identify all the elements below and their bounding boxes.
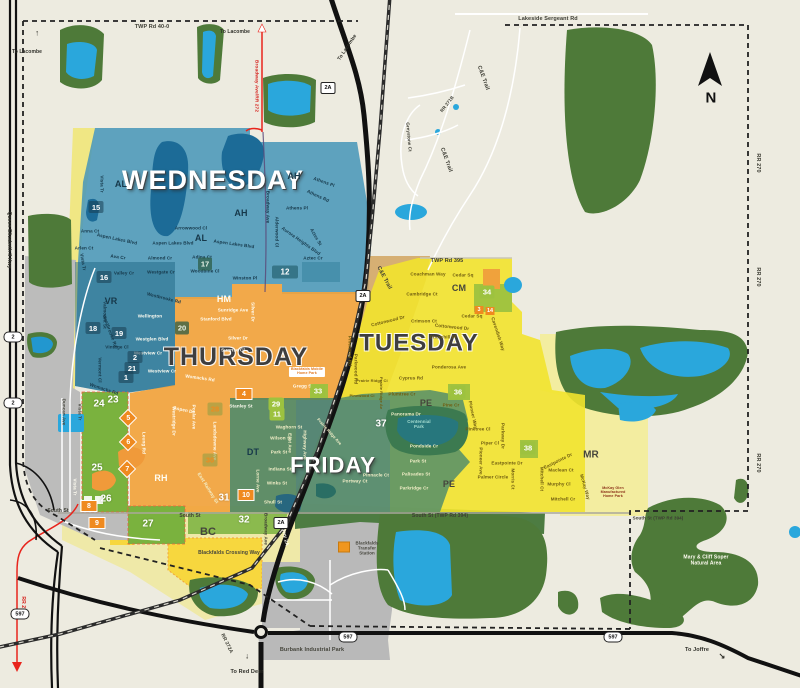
map-label: Athens Pl bbox=[313, 176, 336, 188]
highway-shield-2A: 2A bbox=[356, 290, 371, 302]
map-label: McKay Way bbox=[579, 474, 591, 501]
map-label: Duncan Ave bbox=[61, 399, 66, 426]
highway-shield-597: 597 bbox=[604, 632, 623, 643]
labels-layer: N WEDNESDAYTHURSDAYTUESDAYFRIDAYALALAHAH… bbox=[0, 0, 800, 688]
map-label: Palmer Circle bbox=[478, 474, 509, 479]
poi-mckay-glen: McKay Glen Manufactured Home Park bbox=[601, 486, 626, 498]
map-label: To Lacombe bbox=[12, 50, 42, 56]
map-label: To Lacombe bbox=[337, 34, 358, 62]
map-label: Morris Ct bbox=[510, 468, 515, 489]
map-label: Sunrise Cl bbox=[221, 347, 245, 352]
zone-label-tuesday: TUESDAY bbox=[359, 331, 478, 358]
zone-badge-23: 23 bbox=[107, 395, 118, 406]
zone-badge-25: 25 bbox=[91, 463, 102, 474]
map-label: Plumtree Cr bbox=[388, 391, 415, 396]
map-label: Mitchell Ct bbox=[539, 467, 544, 491]
map-label: Vista Tr bbox=[99, 175, 104, 192]
map-label: C&E Trail bbox=[439, 147, 453, 173]
zone-badge-18: 18 bbox=[86, 322, 101, 334]
map-label: Arlen Ct bbox=[75, 245, 94, 250]
area-label-bc: BC bbox=[200, 526, 216, 538]
highway-shield-2A: 2A bbox=[274, 517, 289, 529]
area-label-hm: HM bbox=[217, 294, 231, 304]
zone-badge-36: 36 bbox=[451, 386, 466, 399]
zone-badge-9: 9 bbox=[89, 517, 106, 529]
map-label: Mitchell Cr bbox=[551, 496, 576, 501]
area-label-al: AL bbox=[115, 179, 127, 189]
zone-badge-17: 17 bbox=[198, 258, 212, 271]
map-label: Vista Tr bbox=[77, 404, 82, 421]
zone-badge-37: 37 bbox=[375, 419, 386, 430]
transfer-station-marker bbox=[338, 542, 350, 553]
map-label: South St bbox=[179, 514, 200, 520]
zone-badge-7: 7 bbox=[118, 460, 136, 478]
poi-transfer-station: Blackfalds Transfer Station bbox=[356, 542, 379, 557]
map-label: Broadway Ave bbox=[263, 513, 268, 545]
map-label: Westgate Cr bbox=[147, 269, 175, 274]
map-label: Stanley St bbox=[229, 403, 252, 408]
north-label: N bbox=[706, 91, 717, 108]
zone-badge-20: 20 bbox=[175, 322, 189, 335]
map-label: South St bbox=[47, 509, 68, 515]
map-label: Aspen Lakes Blvd bbox=[152, 240, 193, 245]
zone-badge-26: 26 bbox=[100, 494, 111, 505]
map-label: Lorne Ave bbox=[255, 469, 260, 492]
map-label: Cottonwood Dr bbox=[371, 314, 406, 327]
area-label-pe: PE bbox=[420, 398, 432, 408]
map-label: To Lacombe bbox=[220, 30, 250, 36]
map-label: Pioneer Way bbox=[468, 401, 479, 430]
highway-shield-2: 2 bbox=[4, 398, 23, 409]
map-label: Cambridge Ct bbox=[406, 291, 437, 296]
zone-badge-3: 3 bbox=[475, 306, 484, 314]
map-label: Vista Tr bbox=[79, 253, 87, 271]
map-label: Sunridge Ave bbox=[218, 307, 248, 312]
map-label: Pinnacle Ct bbox=[363, 472, 389, 477]
map-label: Indiana St bbox=[269, 466, 292, 471]
zone-badge-30: 30 bbox=[203, 454, 218, 467]
zone-label-wednesday: WEDNESDAY bbox=[122, 165, 304, 195]
poi-mobile-home-park: Blackfalds Mobile Home Park bbox=[289, 367, 325, 377]
map-label: Lakeside Sergeant Rd bbox=[518, 16, 577, 22]
map-label: Ponderosa Ave bbox=[432, 364, 466, 369]
map-label: Panorama Dr bbox=[391, 411, 421, 416]
zone-badge-31: 31 bbox=[218, 493, 229, 504]
zone-badge-24: 24 bbox=[93, 399, 104, 410]
map-label: Almond Cr bbox=[148, 255, 172, 260]
poi-soper-natural-area: Mary & Cliff Soper Natural Area bbox=[683, 555, 728, 566]
zone-badge-6: 6 bbox=[119, 433, 137, 451]
map-label: Westglen Blvd bbox=[136, 336, 169, 341]
map-label: Piper Cl bbox=[481, 440, 499, 445]
map-label: Aspen Lakes Blvd bbox=[213, 239, 254, 250]
zone-badge-34: 34 bbox=[480, 286, 495, 299]
zone-badge-33: 33 bbox=[311, 385, 326, 398]
map-label: Pinewood Cl bbox=[349, 394, 374, 398]
map-label: Maclean Ct bbox=[548, 467, 573, 472]
map-label: Ava Cr bbox=[110, 253, 126, 260]
map-label: Aztec Cr bbox=[303, 255, 322, 260]
map-label: Portway Ct bbox=[343, 478, 368, 483]
zone-badge-32: 32 bbox=[238, 515, 249, 526]
highway-shield-597: 597 bbox=[11, 609, 30, 620]
arrow-up-icon: ↑ bbox=[35, 30, 39, 39]
zone-badge-28: 28 bbox=[208, 403, 223, 416]
zone-badge-4: 4 bbox=[236, 388, 253, 400]
poi-centennial-park: Centennial Park bbox=[407, 420, 430, 430]
map-label: Parkway Dr bbox=[500, 423, 505, 449]
map-label: Highway Ave bbox=[302, 430, 307, 459]
map-label: C&E Trail bbox=[476, 65, 490, 91]
map-label: Leung Rd bbox=[141, 432, 146, 454]
map-label: Westbrooke Rd bbox=[146, 291, 181, 304]
area-label-dt: DT bbox=[247, 447, 259, 457]
area-label-cm: CM bbox=[452, 283, 466, 293]
map-label: To Red Deer bbox=[230, 669, 263, 675]
map-label: Parkwood Rd bbox=[353, 354, 358, 384]
zone-badge-1: 1 bbox=[119, 371, 134, 383]
map-label: Shull St bbox=[264, 499, 282, 504]
map-label: Waghorn St bbox=[276, 424, 303, 429]
map-label: To Joffre bbox=[685, 647, 709, 653]
map-label: Cedar Sq bbox=[462, 313, 483, 318]
map-label: East Ave bbox=[287, 433, 292, 453]
map-label: Silver Dr bbox=[250, 302, 255, 322]
area-label-rh: RH bbox=[154, 473, 167, 483]
arrow-down-icon: ↓ bbox=[245, 653, 249, 662]
map-label: Broadway Ave bbox=[265, 191, 270, 224]
map-label: Park St bbox=[271, 449, 288, 454]
map-label: Cyprus Rd bbox=[399, 375, 423, 380]
area-label-mr: MR bbox=[583, 449, 599, 460]
map-label: TWP Rd 40-0 bbox=[135, 24, 170, 30]
map-label: Hwy 2A bbox=[279, 527, 288, 546]
map-label: Pioneer Ave bbox=[478, 447, 483, 474]
map-label: Valley Cr bbox=[114, 270, 134, 275]
map-label: Prairie Ridge Ave bbox=[316, 418, 342, 447]
zone-badge-27: 27 bbox=[142, 519, 153, 530]
map-label: RR 270 bbox=[755, 453, 761, 472]
map-label: Crimson Ct bbox=[411, 318, 437, 323]
map-label: RR 270 bbox=[755, 267, 761, 286]
map-label: Queen Elizabeth II Hwy bbox=[5, 212, 11, 269]
highway-shield-2A: 2A bbox=[321, 82, 336, 94]
highway-shield-597: 597 bbox=[339, 632, 358, 643]
zone-badge-15: 15 bbox=[89, 201, 104, 213]
map-label: Westview Cr bbox=[148, 368, 176, 373]
map-label: Cedar Sq bbox=[453, 272, 474, 277]
map-label: TWP Rd 395 bbox=[431, 258, 464, 264]
zone-badge-label: 6 bbox=[126, 439, 130, 446]
map-label: Pinewood Rd bbox=[347, 336, 352, 366]
map-label: Silver Dr bbox=[228, 335, 248, 340]
map-label: Murphy Cl bbox=[547, 481, 570, 486]
map-label: Palisades St bbox=[402, 471, 430, 476]
map-label: East Railway St bbox=[196, 472, 219, 505]
collection-schedule-map: N WEDNESDAYTHURSDAYTUESDAYFRIDAYALALAHAH… bbox=[0, 0, 800, 688]
map-label: Arrowwood Cl bbox=[175, 225, 207, 230]
poi-burbank-industrial-park: Burbank Industrial Park bbox=[280, 647, 344, 653]
map-label: South St (TWP Rd 394) bbox=[633, 515, 684, 520]
map-label: Stanford Blvd bbox=[200, 316, 231, 321]
map-label: Winks St bbox=[267, 480, 287, 485]
map-label: Vista Tr bbox=[72, 479, 77, 496]
area-label-al: AL bbox=[195, 233, 207, 243]
map-label: RR 270 bbox=[755, 153, 761, 172]
map-label: Pinetree Cl bbox=[465, 426, 490, 431]
map-label: Greystone Ct bbox=[405, 122, 413, 152]
map-label: Eastpointe Dr bbox=[491, 460, 522, 465]
map-label: RR 272A bbox=[219, 633, 233, 655]
map-label: Westridge Dr bbox=[171, 406, 176, 436]
area-label-ah: AH bbox=[234, 208, 247, 218]
map-label: C&E Trail bbox=[375, 265, 392, 290]
arrow-se-icon: ↘ bbox=[719, 653, 726, 662]
highway-shield-2: 2 bbox=[4, 332, 23, 343]
zone-badge-12: 12 bbox=[272, 266, 298, 279]
zone-badge-16: 16 bbox=[97, 271, 112, 283]
map-label: Aztec St bbox=[309, 228, 323, 247]
map-label: South St (TWP Rd 394) bbox=[412, 514, 468, 520]
map-label: Parkridge Cr bbox=[400, 485, 429, 490]
map-label: Vintage Cl bbox=[105, 344, 128, 349]
zone-badge-10: 10 bbox=[238, 489, 255, 501]
map-label: Wellington bbox=[138, 313, 162, 318]
map-label: Pondside Cr bbox=[410, 443, 438, 448]
zone-badge-label: 5 bbox=[126, 415, 130, 422]
map-label: Cavendish Way bbox=[490, 317, 506, 352]
zone-badge-14: 14 bbox=[486, 307, 495, 315]
map-label: Blackfalds Crossing Way bbox=[198, 551, 260, 557]
zone-badge-19: 19 bbox=[112, 327, 127, 339]
map-label: Womacks Rd bbox=[185, 373, 215, 382]
map-label: Winston Pl bbox=[233, 275, 258, 280]
zone-badge-11: 11 bbox=[270, 408, 285, 421]
zone-badge-38: 38 bbox=[521, 442, 536, 455]
map-label: Poplar Ave bbox=[191, 405, 196, 430]
area-label-pe: PE bbox=[443, 479, 455, 489]
zone-badge-8: 8 bbox=[81, 500, 98, 512]
area-label-ah: AH bbox=[287, 171, 300, 181]
map-label: Athens Rd bbox=[306, 189, 330, 204]
map-label: Vermont Cl bbox=[97, 357, 102, 382]
zone-badge-5: 5 bbox=[119, 409, 137, 427]
map-label: Coachman Way bbox=[410, 271, 445, 276]
map-label: Aspen Lakes Blvd bbox=[96, 232, 137, 246]
map-label: Athens Pl bbox=[286, 205, 308, 210]
map-label: Broadway Ave/RR 272 bbox=[253, 60, 258, 112]
zone-badge-label: 7 bbox=[125, 466, 129, 473]
map-label: RR 271B bbox=[439, 95, 455, 113]
map-label: Churchill Pl bbox=[430, 334, 457, 339]
map-label: Park St bbox=[410, 458, 427, 463]
map-label: Alderwood Cl bbox=[274, 217, 279, 248]
map-label: Prairie Ridge Av bbox=[379, 377, 383, 409]
map-label: Pine Cr bbox=[443, 402, 460, 407]
